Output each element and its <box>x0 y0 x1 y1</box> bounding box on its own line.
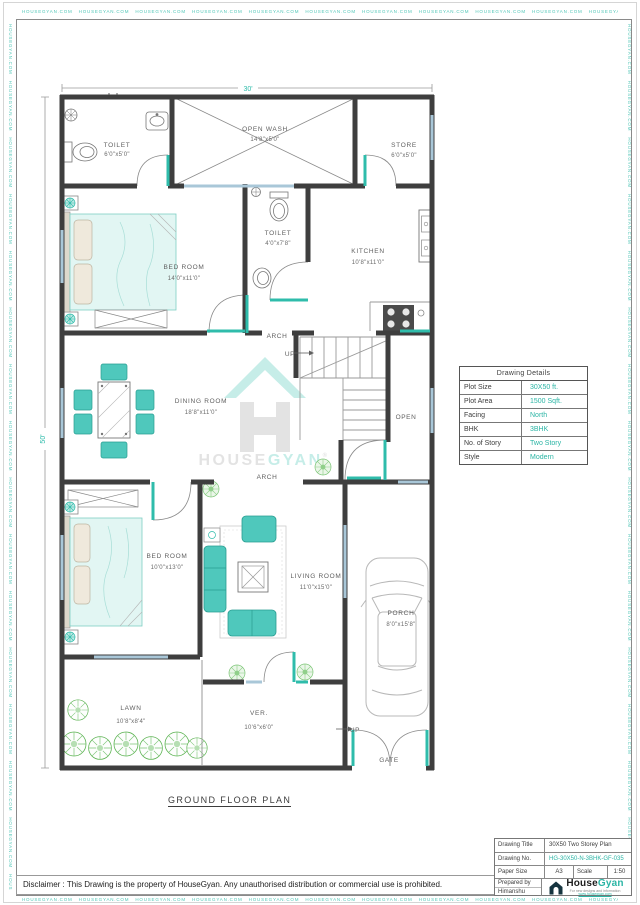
sofa-set-icon <box>204 516 286 638</box>
detail-label: Facing <box>460 409 522 422</box>
dresser-icon <box>68 490 138 507</box>
drawing-details-title: Drawing Details <box>460 367 587 381</box>
kitchen-counter <box>370 210 433 331</box>
center-table-icon <box>238 562 268 592</box>
lamp-icon <box>65 198 75 208</box>
scale-label: Scale <box>574 866 608 878</box>
room-label-toilet-1: TOILET <box>104 142 131 149</box>
drawing-title-value: 30X50 Two Storey Plan <box>545 839 631 852</box>
detail-value: Modern <box>522 451 587 464</box>
wc-icon <box>64 142 97 162</box>
detail-label: Plot Size <box>460 381 522 394</box>
detail-value: 1500 Sqft. <box>522 395 587 408</box>
dimension-top-label: 30' <box>243 86 252 93</box>
detail-label: Plot Area <box>460 395 522 408</box>
room-label-bedroom-1: BED ROOM <box>164 264 205 271</box>
corner-table <box>204 528 220 542</box>
title-block: Drawing Title 30X50 Two Storey Plan Draw… <box>494 838 632 896</box>
bed-icon <box>62 516 142 628</box>
sofa-icon <box>204 546 226 612</box>
drawing-no-label: Drawing No. <box>495 853 545 865</box>
table-row: FacingNorth <box>460 409 587 423</box>
room-size-verandah: 10'6"x6'0" <box>244 725 273 731</box>
scale-value: 1:50 <box>608 866 631 878</box>
bush-icon <box>62 732 86 756</box>
detail-label: Style <box>460 451 522 464</box>
lamp-icon <box>65 314 75 324</box>
room-label-living: LIVING ROOM <box>290 573 341 580</box>
room-label-kitchen: KITCHEN <box>351 248 384 255</box>
paper-size-label: Paper Size <box>495 866 545 878</box>
detail-label: No. of Story <box>460 437 522 450</box>
title-block-row: Drawing Title 30X50 Two Storey Plan <box>495 839 631 853</box>
table-row: StyleModern <box>460 451 587 464</box>
bush-icon <box>68 700 88 720</box>
drawing-sheet: HOUSEGYAN.COM HOUSEGYAN.COM HOUSEGYAN.CO… <box>0 0 640 905</box>
up-label-gate: UP <box>350 727 360 734</box>
bush-icon <box>89 737 112 760</box>
dresser-icon <box>95 310 167 328</box>
table-row: Plot Area1500 Sqft. <box>460 395 587 409</box>
brand-gyan: Gyan <box>598 878 624 889</box>
room-size-toilet-1: 6'0"x5'0" <box>104 152 130 158</box>
bedroom2-furniture <box>62 490 142 644</box>
bed-icon <box>62 212 176 312</box>
wc-icon <box>270 192 288 221</box>
room-size-bedroom-1: 14'0"x11'0" <box>168 276 200 282</box>
dimension-left-label: 50' <box>40 434 47 443</box>
room-label-dining: DINING ROOM <box>175 398 227 405</box>
up-label-stairs: UP <box>285 351 295 358</box>
room-label-open-wash: OPEN WASH <box>242 126 288 133</box>
brand-url: www.housegyan.com <box>566 893 623 897</box>
drawing-title-label: Drawing Title <box>495 839 545 852</box>
detail-label: BHK <box>460 423 522 436</box>
prepared-by-cell: Prepared by Himanshu <box>495 879 542 896</box>
title-block-row: Prepared by Himanshu HouseGyan For new d… <box>495 879 631 896</box>
detail-value: 30X50 ft. <box>522 381 587 394</box>
prepared-by-value: Himanshu <box>495 888 541 896</box>
room-size-lawn: 10'8"x8'4" <box>116 719 145 725</box>
room-size-bedroom-2: 10'0"x13'0" <box>151 565 184 571</box>
washbasin-icon <box>146 112 168 130</box>
table-row: Plot Size30X50 ft. <box>460 381 587 395</box>
room-label-verandah: VER. <box>250 710 268 717</box>
room-size-dining: 18'8"x11'0" <box>185 410 217 416</box>
bush-icon <box>165 732 189 756</box>
plant-icon <box>315 459 331 475</box>
plan-title: GROUND FLOOR PLAN <box>168 795 291 807</box>
detail-value: Two Story <box>522 437 587 450</box>
dining-table-icon <box>74 364 154 458</box>
room-label-lawn: LAWN <box>120 705 141 712</box>
lamp-icon <box>65 632 75 642</box>
room-size-store: 6'0"x5'0" <box>391 153 417 159</box>
room-size-kitchen: 10'8"x11'0" <box>352 260 384 266</box>
room-label-toilet-2: TOILET <box>265 230 292 237</box>
room-size-porch: 8'0"x15'8" <box>386 622 415 628</box>
open-label: OPEN <box>396 414 417 421</box>
plant-icon <box>229 665 245 681</box>
bedroom1-furniture <box>62 196 176 328</box>
room-label-porch: PORCH <box>388 610 415 617</box>
table-row: BHK3BHK <box>460 423 587 437</box>
room-size-toilet-2: 4'0"x7'8" <box>265 241 291 247</box>
drawing-details-table: Drawing Details Plot Size30X50 ft. Plot … <box>459 366 588 465</box>
washbasin-icon <box>253 268 271 288</box>
shower-icon <box>252 188 261 197</box>
toilet2-fixtures <box>252 188 289 289</box>
room-label-bedroom-2: BED ROOM <box>147 553 188 560</box>
paper-size-value: A3 <box>545 866 574 878</box>
drawing-no-value: HG-30X50-N-3BHK-GF-035 <box>545 853 631 865</box>
title-block-row: Drawing No. HG-30X50-N-3BHK-GF-035 <box>495 853 631 866</box>
detail-value: 3BHK <box>522 423 587 436</box>
arch-label-top: ARCH <box>267 333 288 340</box>
room-size-living: 11'0"x15'0" <box>300 585 332 591</box>
housegyan-house-icon <box>549 881 563 895</box>
plant-icon <box>297 664 313 680</box>
arch-label-bottom: ARCH <box>257 474 278 481</box>
brand-house: House <box>566 878 598 889</box>
table-row: No. of StoryTwo Story <box>460 437 587 451</box>
bush-icon <box>140 737 163 760</box>
bush-icon <box>187 738 207 758</box>
gate-label: GATE <box>379 757 399 764</box>
bush-icon <box>114 732 138 756</box>
room-size-open-wash: 14'8"x5'0" <box>250 137 279 143</box>
room-label-store: STORE <box>391 142 417 149</box>
prepared-by-label: Prepared by <box>495 879 541 888</box>
shower-icon <box>65 109 77 121</box>
housegyan-logo: HouseGyan For new designs and informatio… <box>542 879 631 896</box>
detail-value: North <box>522 409 587 422</box>
car-icon <box>361 558 433 716</box>
sofa-icon <box>242 516 276 542</box>
lamp-icon <box>65 502 75 512</box>
watermark-wordmark: HOUSEGYAN® <box>198 452 329 469</box>
stove-icon <box>383 305 414 331</box>
stairs-icon <box>300 337 388 440</box>
disclaimer-text: Disclaimer : This Drawing is the propert… <box>16 875 500 895</box>
